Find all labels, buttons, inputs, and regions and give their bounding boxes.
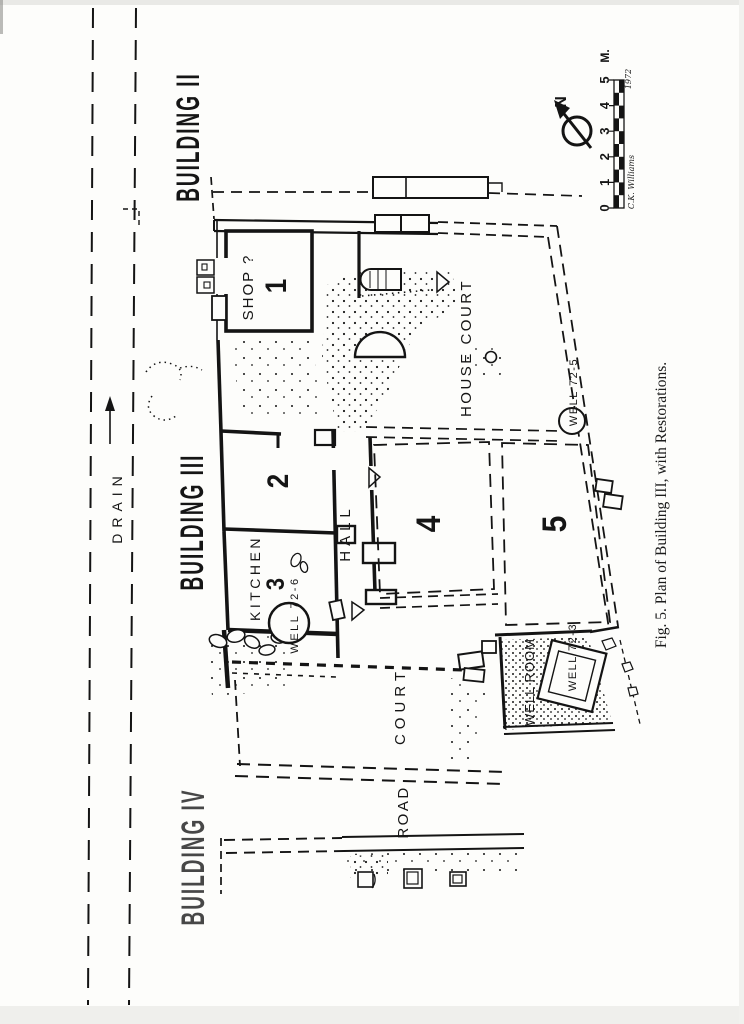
scale-tick-2: 2 [597, 153, 612, 160]
east-wall-blocks [595, 479, 623, 509]
plan-canvas: BUILDING II BUILDING III BUILDING IV DRA… [0, 0, 744, 1024]
building-ii-walls [211, 177, 582, 219]
label-house-court: HOUSE COURT [458, 279, 475, 417]
label-building-iii: BUILDING III [174, 454, 211, 591]
label-hall: HALL [337, 504, 354, 562]
label-building-iv: BUILDING IV [175, 789, 212, 926]
figure-caption: Fig. 5. Plan of Building III, with Resto… [653, 362, 670, 648]
label-court: COURT [392, 667, 409, 745]
label-drain: DRAIN [109, 470, 125, 544]
room-number-2: 2 [261, 474, 294, 488]
surveyor-signature: C.K. Williams [627, 155, 636, 209]
label-shop: SHOP ? [240, 254, 257, 321]
scale-tick-0: 0 [597, 204, 612, 211]
label-building-ii: BUILDING II [170, 72, 207, 202]
scale-tick-4: 4 [597, 101, 612, 109]
scale-tick-5: 5 [597, 76, 612, 83]
drain-flow-arrow-icon [105, 396, 115, 444]
court-wellroom-door-blocks [458, 641, 496, 682]
scale-tick-1: 1 [597, 179, 612, 186]
room-number-1: 1 [259, 279, 292, 293]
north-label: N [553, 96, 570, 108]
label-well-72-6: WELL 72-6 [289, 576, 301, 653]
room-number-4: 4 [409, 516, 447, 533]
kitchen-amphora [289, 552, 309, 573]
road-block-3 [450, 872, 466, 886]
scale-bar [609, 80, 624, 208]
scale-unit: M. [598, 49, 612, 62]
label-well-room: WELL ROOM [522, 638, 537, 726]
scale-tick-3: 3 [597, 128, 612, 135]
hall-south-door-blocks [329, 600, 364, 620]
label-well-72-3: WELL 72-3 [567, 623, 579, 691]
survey-year: 1972 [624, 69, 633, 89]
room-number-5: 5 [535, 516, 573, 533]
label-kitchen: KITCHEN [247, 535, 263, 621]
scanned-plan-page: BUILDING II BUILDING III BUILDING IV DRA… [0, 0, 744, 1024]
label-well-72-5: WELL 72-5 [568, 358, 580, 426]
room-number-3: 3 [263, 578, 291, 590]
house-court-basin [486, 352, 497, 363]
road-block-1 [358, 872, 373, 887]
label-road: ROAD [395, 785, 412, 838]
